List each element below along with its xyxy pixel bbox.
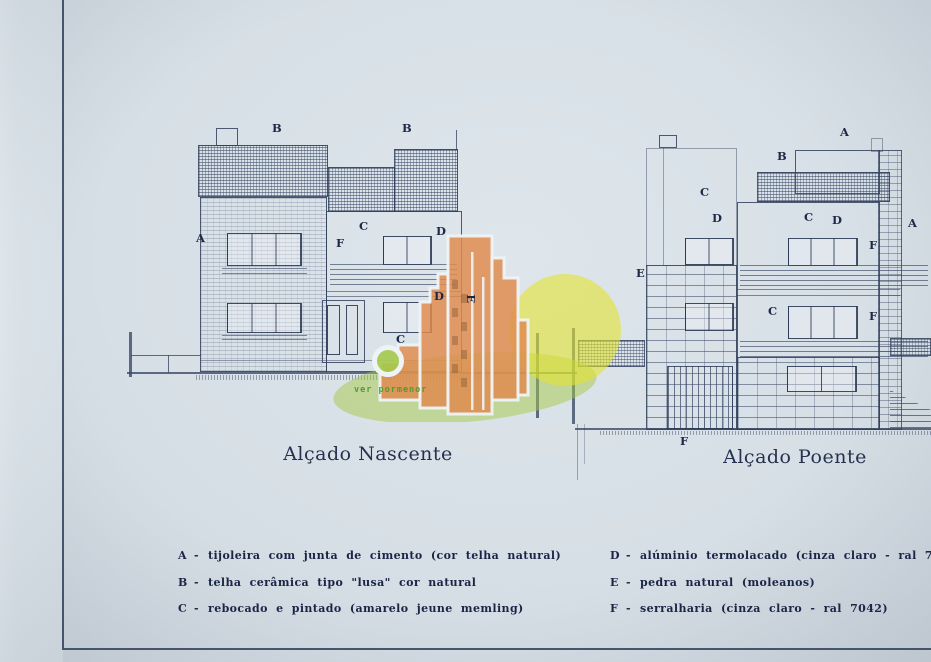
- sheet-frame-vertical-line: [62, 0, 64, 650]
- legend-dash: -: [626, 602, 640, 615]
- antenna-line: [456, 130, 457, 150]
- legend-text: telha cerâmica tipo "lusa" cor natural: [208, 576, 476, 589]
- window: [685, 238, 734, 265]
- garden-wall-top-line: [131, 355, 201, 356]
- chimney: [659, 135, 677, 148]
- watermark-caption: ver pormenor: [354, 385, 427, 395]
- material-label: B: [777, 151, 787, 163]
- legend-key: E: [610, 576, 626, 589]
- ground-hatch-poente: [600, 431, 931, 435]
- legend-right-column: D-alúminio termolacado (cinza claro - ra…: [610, 549, 931, 629]
- window: [227, 233, 302, 266]
- material-label: E: [636, 268, 645, 280]
- window: [227, 303, 302, 333]
- material-label: B: [272, 123, 282, 135]
- garden-wall-joint: [168, 355, 169, 373]
- legend-item: D-alúminio termolacado (cinza claro - ra…: [610, 549, 931, 562]
- legend-item: B-telha cerâmica tipo "lusa" cor natural: [178, 576, 561, 589]
- legend-key: B: [178, 576, 194, 589]
- material-label: B: [402, 123, 412, 135]
- stair-railing-hatch: [890, 338, 931, 356]
- sheet-frame-bottom-line: [62, 648, 931, 650]
- legend-dash: -: [194, 602, 208, 615]
- drawing-sheet: BBACFDDCE ABCDCDAEFCFF: [0, 0, 931, 662]
- legend-key: D: [610, 549, 626, 562]
- wall-brick-block: [200, 197, 327, 372]
- material-label: A: [840, 127, 849, 139]
- elevation-title-poente: Alçado Poente: [723, 446, 867, 468]
- legend-item: A-tijoleira com junta de cimento (cor te…: [178, 549, 561, 562]
- garage-door: [667, 366, 733, 429]
- legend-item: C-rebocado e pintado (amarelo jeune meml…: [178, 602, 561, 615]
- legend-key: A: [178, 549, 194, 562]
- window: [788, 306, 858, 339]
- chimney: [216, 128, 238, 146]
- logo-green-dot: [375, 348, 402, 375]
- legend-text: pedra natural (moleanos): [640, 576, 815, 589]
- roof-tiles-strip: [757, 172, 890, 202]
- section-line-below-grade: [584, 424, 585, 464]
- window-sill: [222, 335, 307, 340]
- material-label: F: [680, 436, 688, 448]
- legend-text: alúminio termolacado (cinza claro - ral …: [640, 549, 931, 562]
- legend-dash: -: [194, 549, 208, 562]
- basement-window: [787, 366, 857, 392]
- elevation-title-nascente: Alçado Nascente: [283, 443, 453, 465]
- logo-building-right: [492, 258, 518, 400]
- logo-tower-slit: [482, 277, 485, 410]
- floor-slab-line: [737, 289, 900, 296]
- legend-text: serralharia (cinza claro - ral 7042): [640, 602, 888, 615]
- section-line-below-grade: [577, 424, 578, 480]
- legend-dash: -: [626, 549, 640, 562]
- roof-tiles-left: [198, 145, 328, 197]
- balcony-window: [788, 238, 858, 266]
- window-sill: [222, 268, 307, 274]
- sheet-left-margin: [0, 0, 63, 662]
- legend-text: tijoleira com junta de cimento (cor telh…: [208, 549, 561, 562]
- legend-key: F: [610, 602, 626, 615]
- window: [685, 303, 734, 331]
- logo-building-tower: [448, 236, 492, 414]
- legend-dash: -: [626, 576, 640, 589]
- legend-item: F-serralharia (cinza claro - ral 7042): [610, 602, 931, 615]
- brick-pier: [878, 150, 902, 430]
- roof-tiles-right-high: [394, 149, 458, 212]
- legend-dash: -: [194, 576, 208, 589]
- legend-text: rebocado e pintado (amarelo jeune memlin…: [208, 602, 524, 615]
- roof-tiles-right-low: [328, 167, 395, 212]
- legend-key: C: [178, 602, 194, 615]
- legend-item: E-pedra natural (moleanos): [610, 576, 931, 589]
- logo-building-small-right: [518, 320, 528, 395]
- material-label: A: [908, 218, 917, 230]
- exterior-stairs: [890, 388, 931, 428]
- legend-left-column: A-tijoleira com junta de cimento (cor te…: [178, 549, 561, 629]
- logo-tower-slit: [471, 252, 474, 410]
